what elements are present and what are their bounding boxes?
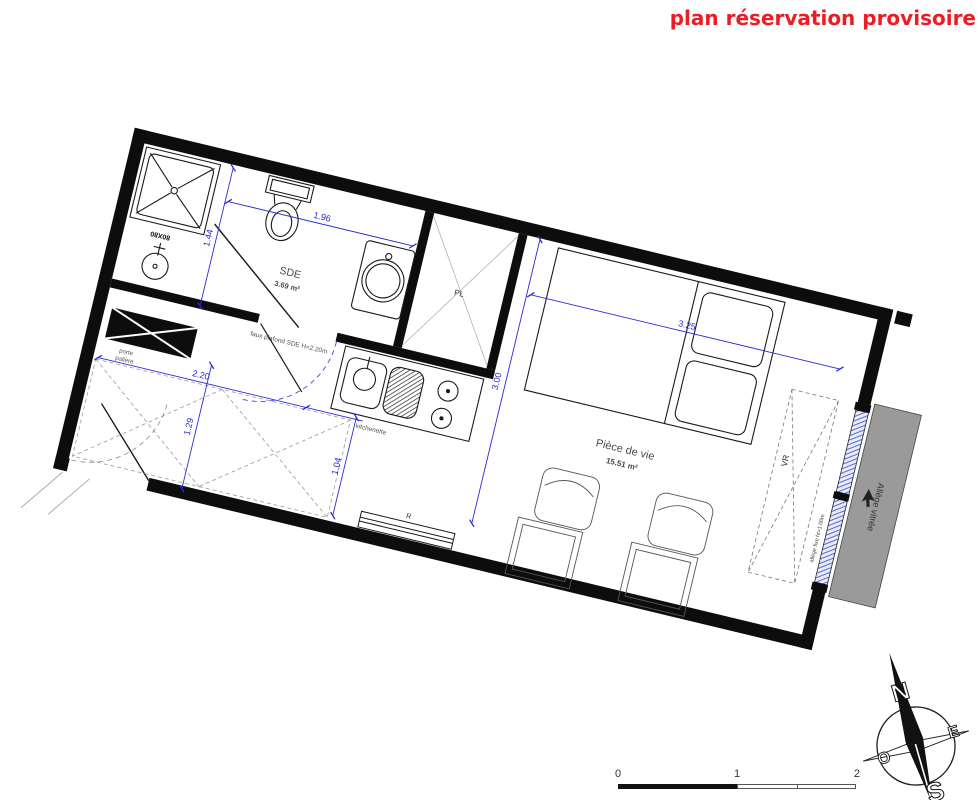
scale-bar-segments: [618, 784, 856, 789]
dim-living-width: 3.25: [677, 318, 696, 332]
washbasin: [139, 240, 173, 282]
shower-tray: [130, 147, 221, 235]
scale-label-1: 1: [734, 768, 740, 780]
dim-sde-width: 1.96: [312, 210, 331, 224]
compass-east: E: [946, 723, 961, 742]
shutter-label: VR: [779, 454, 791, 468]
dim-kitchen-passage: 1.04: [329, 456, 343, 475]
floor-plan-drawing: 80X80 SDE 3.69 m² faux plafond SDE H: [12, 111, 963, 715]
scale-segment-filled: [618, 784, 737, 789]
compass-south: S: [923, 775, 948, 800]
landing-lines: [21, 465, 90, 522]
scale-midtick: [797, 785, 798, 788]
radiator-label: R: [405, 513, 412, 521]
shower-size-label: 80X80: [150, 229, 171, 241]
compass-north: N: [889, 677, 913, 708]
living-label: Pièce de vie: [595, 437, 656, 463]
scale-segment-open: [737, 784, 856, 789]
placard-label: PL: [453, 288, 465, 299]
scale-label-2: 2: [854, 768, 860, 780]
compass-rose: N E S O: [848, 642, 978, 800]
scale-label-0: 0: [615, 768, 621, 780]
dim-sde-depth: 1.44: [201, 228, 215, 247]
dim-entry-depth: 1.29: [182, 417, 196, 436]
sde-ceiling-note: faux plafond SDE H=2.20m: [250, 331, 328, 356]
armchair: [646, 491, 715, 557]
armchair: [533, 466, 602, 532]
scale-bar: 0 1 2: [618, 768, 856, 794]
page-title: plan réservation provisoire: [670, 6, 976, 30]
sde-area: 3.69 m²: [273, 279, 301, 294]
exterior-walls: [53, 128, 913, 655]
sde-label: SDE: [278, 265, 302, 282]
dim-entry-width: 2.20: [191, 368, 210, 382]
kitchenette-label: kitchenette: [355, 423, 388, 437]
living-area: 15.51 m²: [605, 456, 639, 472]
